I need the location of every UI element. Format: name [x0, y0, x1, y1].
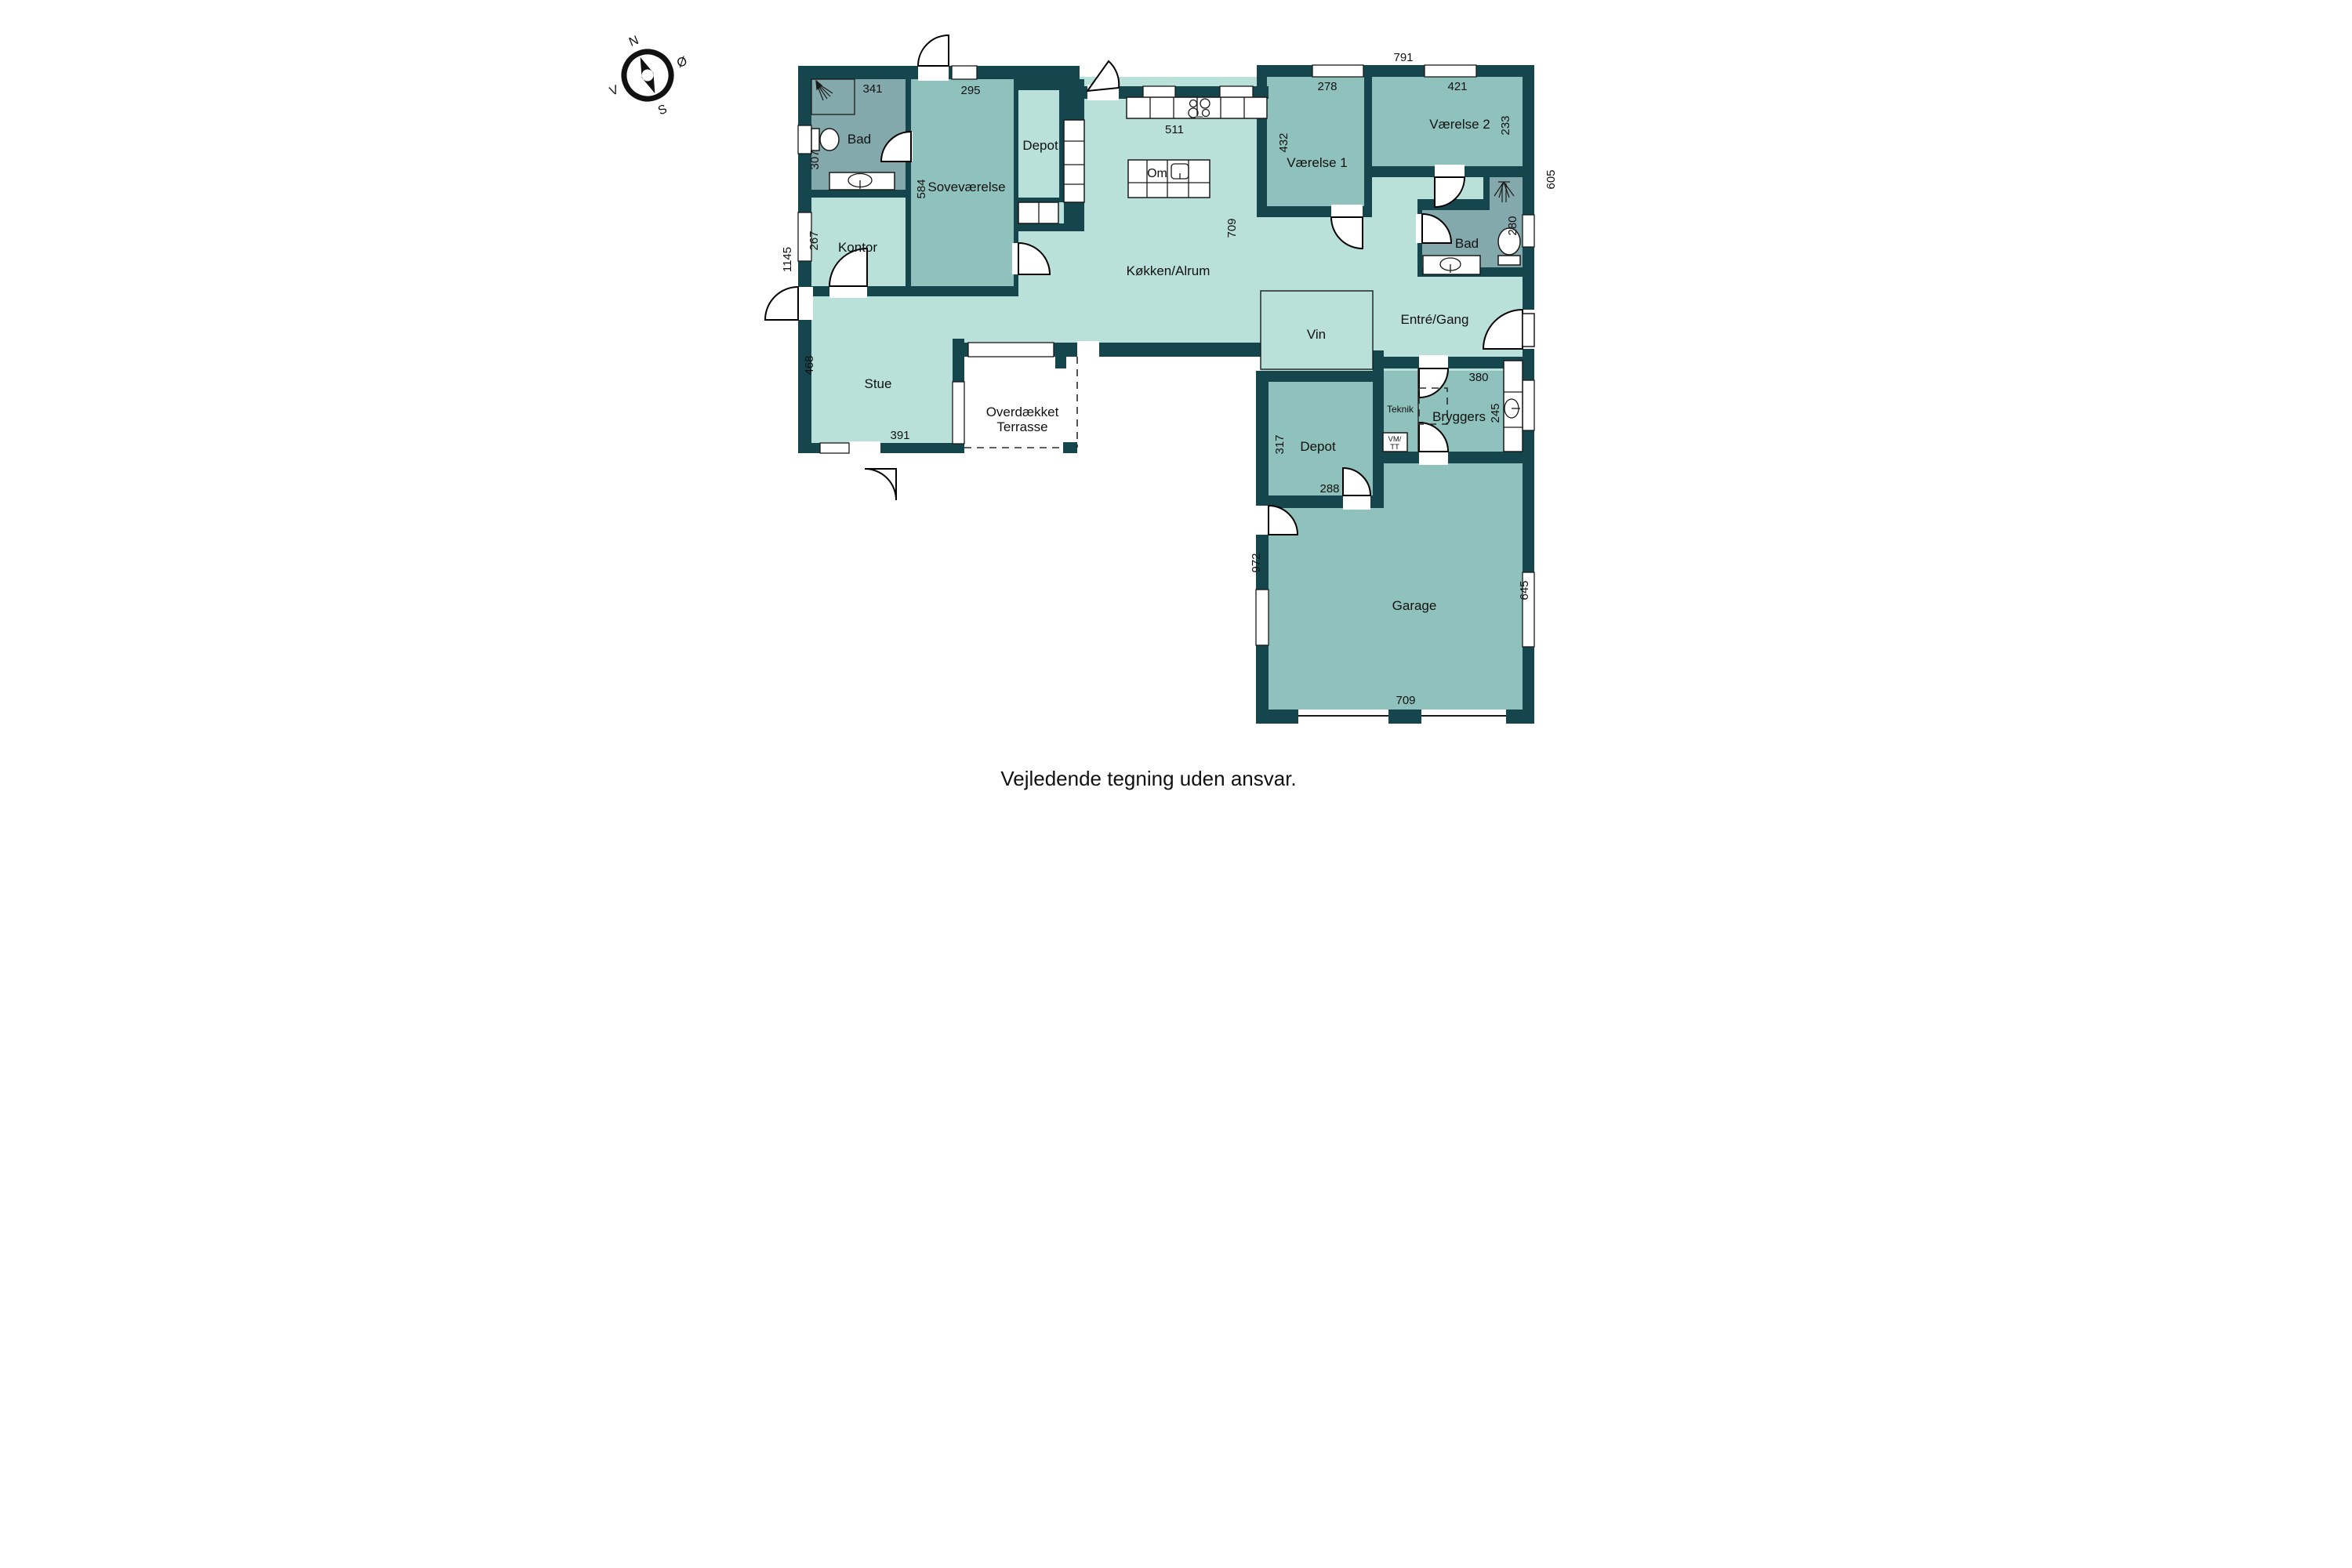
dim-307: 307 [808, 150, 822, 169]
room-label-terrasse-line1: Overdækket [985, 405, 1058, 419]
window-garage-west [1256, 590, 1269, 645]
door-stue-west-exterior [765, 287, 798, 320]
dim-468: 468 [803, 355, 816, 375]
door-stue-south-exterior [865, 469, 896, 500]
room-label-kokken-alrum: Køkken/Alrum [1126, 263, 1210, 278]
dim-233: 233 [1499, 115, 1512, 135]
dim-391: 391 [890, 429, 909, 442]
dim-341: 341 [862, 82, 882, 96]
dim-1145: 1145 [781, 247, 794, 272]
room-label-garage: Garage [1392, 598, 1436, 613]
toilet-tank-bad1 [811, 129, 819, 151]
dim-288: 288 [1319, 482, 1339, 495]
window-bad2 [1523, 215, 1534, 247]
disclaimer-text: Vejledende tegning uden ansvar. [1000, 767, 1296, 790]
compass-south: S [655, 103, 668, 118]
dim-317: 317 [1273, 434, 1287, 454]
kitchen-island [1128, 160, 1210, 198]
dim-709-garage: 709 [1396, 694, 1415, 707]
dim-511: 511 [1165, 123, 1184, 136]
compass-north: N [627, 34, 641, 49]
window-kokken-terrace [968, 343, 1054, 357]
toilet-tank-bad2 [1498, 256, 1520, 265]
compass-east: Ø [675, 55, 689, 71]
dim-605: 605 [1544, 169, 1558, 189]
dim-267: 267 [808, 230, 821, 250]
label-tt: TT [1390, 443, 1399, 452]
room-label-bad1: Bad [847, 132, 870, 147]
compass-west: V [608, 83, 621, 99]
door-sovevaerelse-exterior [918, 35, 949, 66]
window-bad1 [798, 125, 811, 154]
floorplan-drawing: Bad Soveværelse Depot Kontor Stue Køkken… [571, 0, 1782, 808]
window-vaerelse1 [1312, 65, 1363, 77]
window-sovevaerelse [952, 66, 977, 79]
dim-421: 421 [1447, 80, 1467, 93]
room-label-teknik: Teknik [1386, 404, 1414, 415]
window-vaerelse2 [1425, 65, 1476, 77]
room-label-kontor: Kontor [837, 240, 877, 255]
room-label-vaerelse2: Værelse 2 [1429, 117, 1490, 132]
dim-972: 972 [1250, 553, 1263, 572]
room-label-vaerelse1: Værelse 1 [1287, 155, 1347, 170]
window-stue-terrace [953, 382, 964, 444]
dim-278: 278 [1317, 80, 1337, 93]
room-label-sovevaerelse: Soveværelse [927, 180, 1005, 194]
dim-432: 432 [1277, 132, 1290, 152]
window-stue-south [820, 443, 849, 453]
window-bryggers [1523, 380, 1534, 430]
toilet-icon-bad1 [820, 129, 839, 151]
dim-280: 280 [1506, 216, 1519, 235]
wardrobe-depot1-east [1064, 120, 1084, 202]
bryggers-counter [1504, 361, 1523, 452]
door-entry-leaf [1523, 314, 1534, 347]
room-label-entre-gang: Entré/Gang [1400, 312, 1468, 327]
dim-791: 791 [1393, 51, 1413, 64]
room-label-bryggers: Bryggers [1432, 409, 1485, 424]
dim-584: 584 [915, 179, 928, 198]
dim-245: 245 [1489, 403, 1502, 423]
dim-380: 380 [1468, 371, 1488, 384]
compass: N Ø S V [593, 20, 702, 132]
floorplan-page: Bad Soveværelse Depot Kontor Stue Køkken… [571, 0, 1782, 808]
dim-709-kokken: 709 [1225, 218, 1239, 238]
door-kokken-exterior [1087, 61, 1119, 91]
room-label-terrasse-line2: Terrasse [996, 419, 1047, 434]
room-label-vin: Vin [1306, 327, 1325, 342]
label-om: Om [1147, 167, 1167, 180]
room-label-stue: Stue [864, 376, 891, 391]
dim-295: 295 [960, 84, 980, 97]
room-label-bad2: Bad [1454, 236, 1478, 251]
room-label-depot1: Depot [1022, 138, 1058, 153]
dim-645: 645 [1518, 580, 1531, 600]
room-label-depot2: Depot [1300, 439, 1336, 454]
